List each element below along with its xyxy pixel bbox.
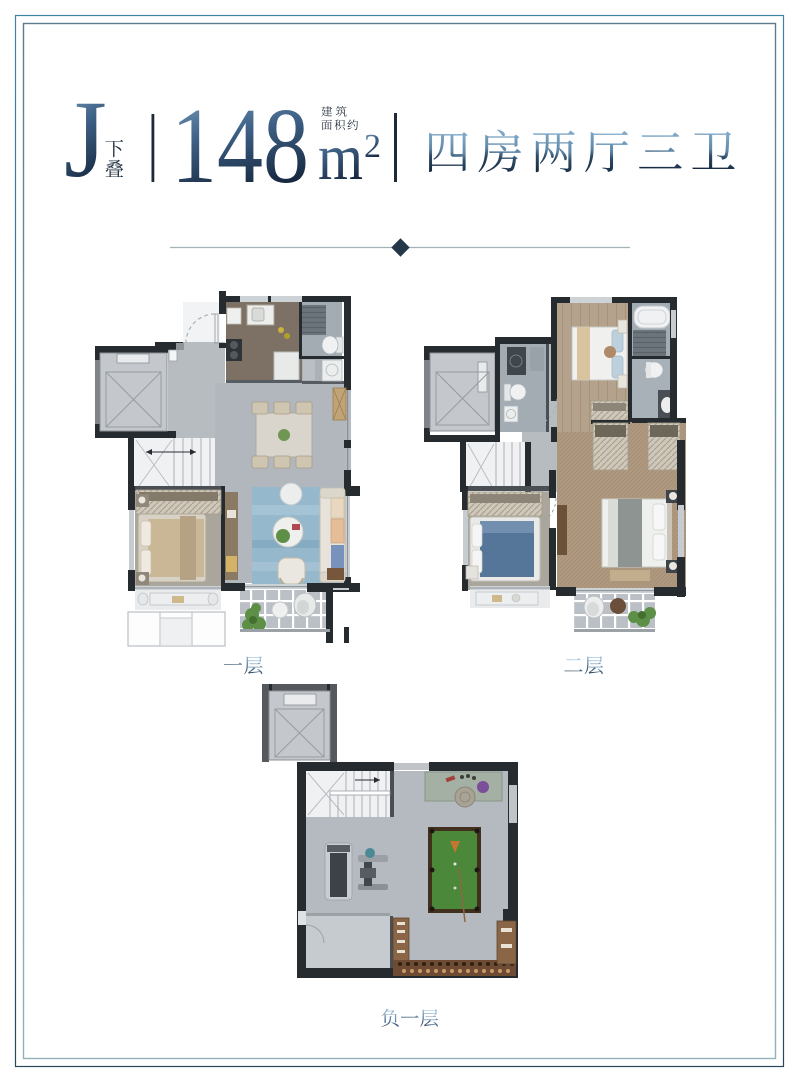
svg-text:148: 148 [171,87,309,206]
svg-text:m: m [318,121,363,194]
svg-text:J: J [64,78,107,200]
svg-text:2: 2 [364,128,381,165]
